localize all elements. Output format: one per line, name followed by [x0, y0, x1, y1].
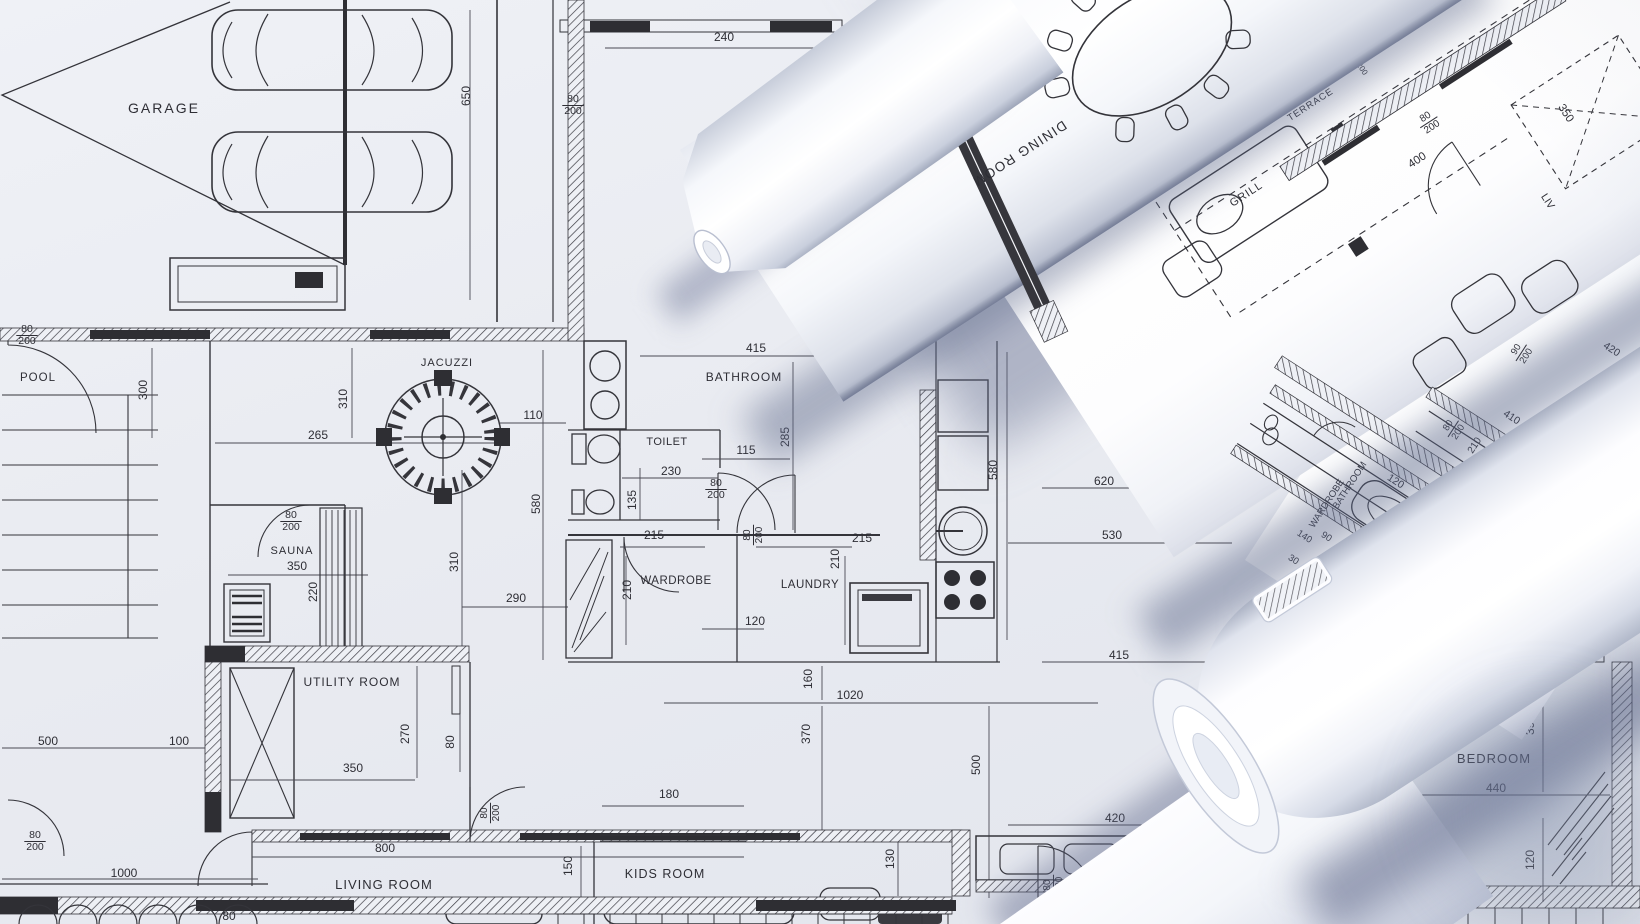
blueprint-photo: GARAGEPOOLJACUZZISAUNABATHROOMTOILETWARD… [0, 0, 1640, 924]
dining-table-icon [1049, 0, 1255, 143]
sheet-label-dining-room: DINING ROOM [969, 118, 1069, 190]
dining-label: DINING ROOM [969, 118, 1069, 190]
svg-text:DINING ROOM: DINING ROOM [969, 118, 1069, 190]
chair-icons [1003, 0, 1289, 182]
